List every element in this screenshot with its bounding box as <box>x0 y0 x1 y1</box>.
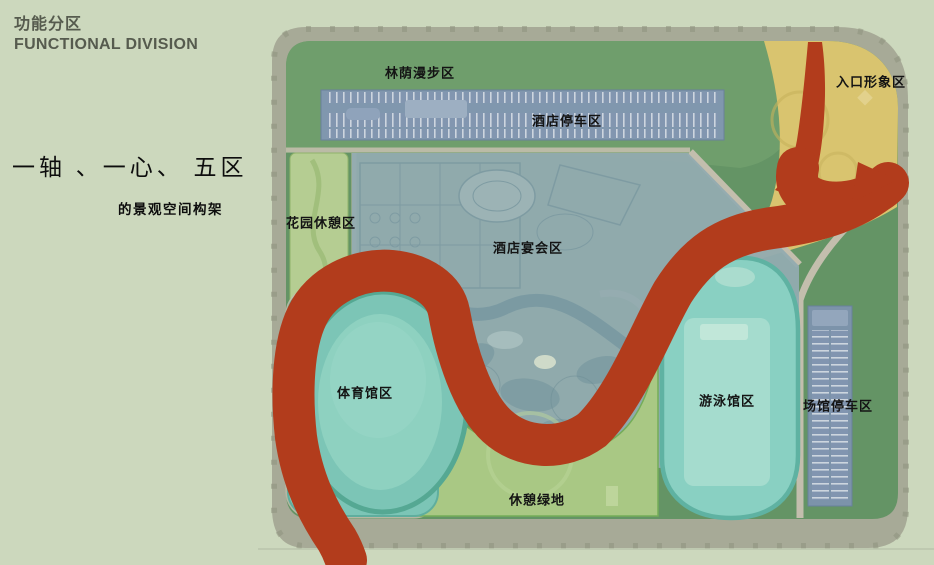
slide: 功能分区 FUNCTIONAL DIVISION 一轴 、一心、 五区 的景观空… <box>0 0 934 565</box>
slide-header: 功能分区 FUNCTIONAL DIVISION <box>14 10 198 54</box>
zone-label-hotel-parking: 酒店停车区 <box>532 111 602 130</box>
zone-label-entrance: 入口形象区 <box>836 72 906 91</box>
swim-landscape <box>715 267 755 287</box>
zone-label-leisure-green: 休憩绿地 <box>509 490 565 509</box>
site-plan-graphic <box>0 0 934 565</box>
headline-main: 一轴 、一心、 五区 <box>12 148 262 182</box>
zone-label-swimming: 游泳馆区 <box>699 391 755 410</box>
zone-label-venue-parking: 场馆停车区 <box>803 396 873 415</box>
swimming-building-top <box>700 324 748 340</box>
zone-hotel-parking <box>321 90 724 140</box>
headline-block: 一轴 、一心、 五区 的景观空间构架 <box>12 148 262 218</box>
lawn-deck <box>606 486 618 506</box>
zone-label-hotel-banquet: 酒店宴会区 <box>493 238 563 257</box>
zone-label-gymnasium: 体育馆区 <box>337 383 393 402</box>
gymnasium-roof-highlight <box>330 322 426 438</box>
headline-sub: 的景观空间构架 <box>118 198 262 218</box>
zone-label-stroll: 林荫漫步区 <box>385 63 455 82</box>
header-title-zh: 功能分区 <box>14 10 198 34</box>
zone-label-garden-rest: 花园休憩区 <box>286 213 356 232</box>
header-title-en: FUNCTIONAL DIVISION <box>14 36 198 54</box>
